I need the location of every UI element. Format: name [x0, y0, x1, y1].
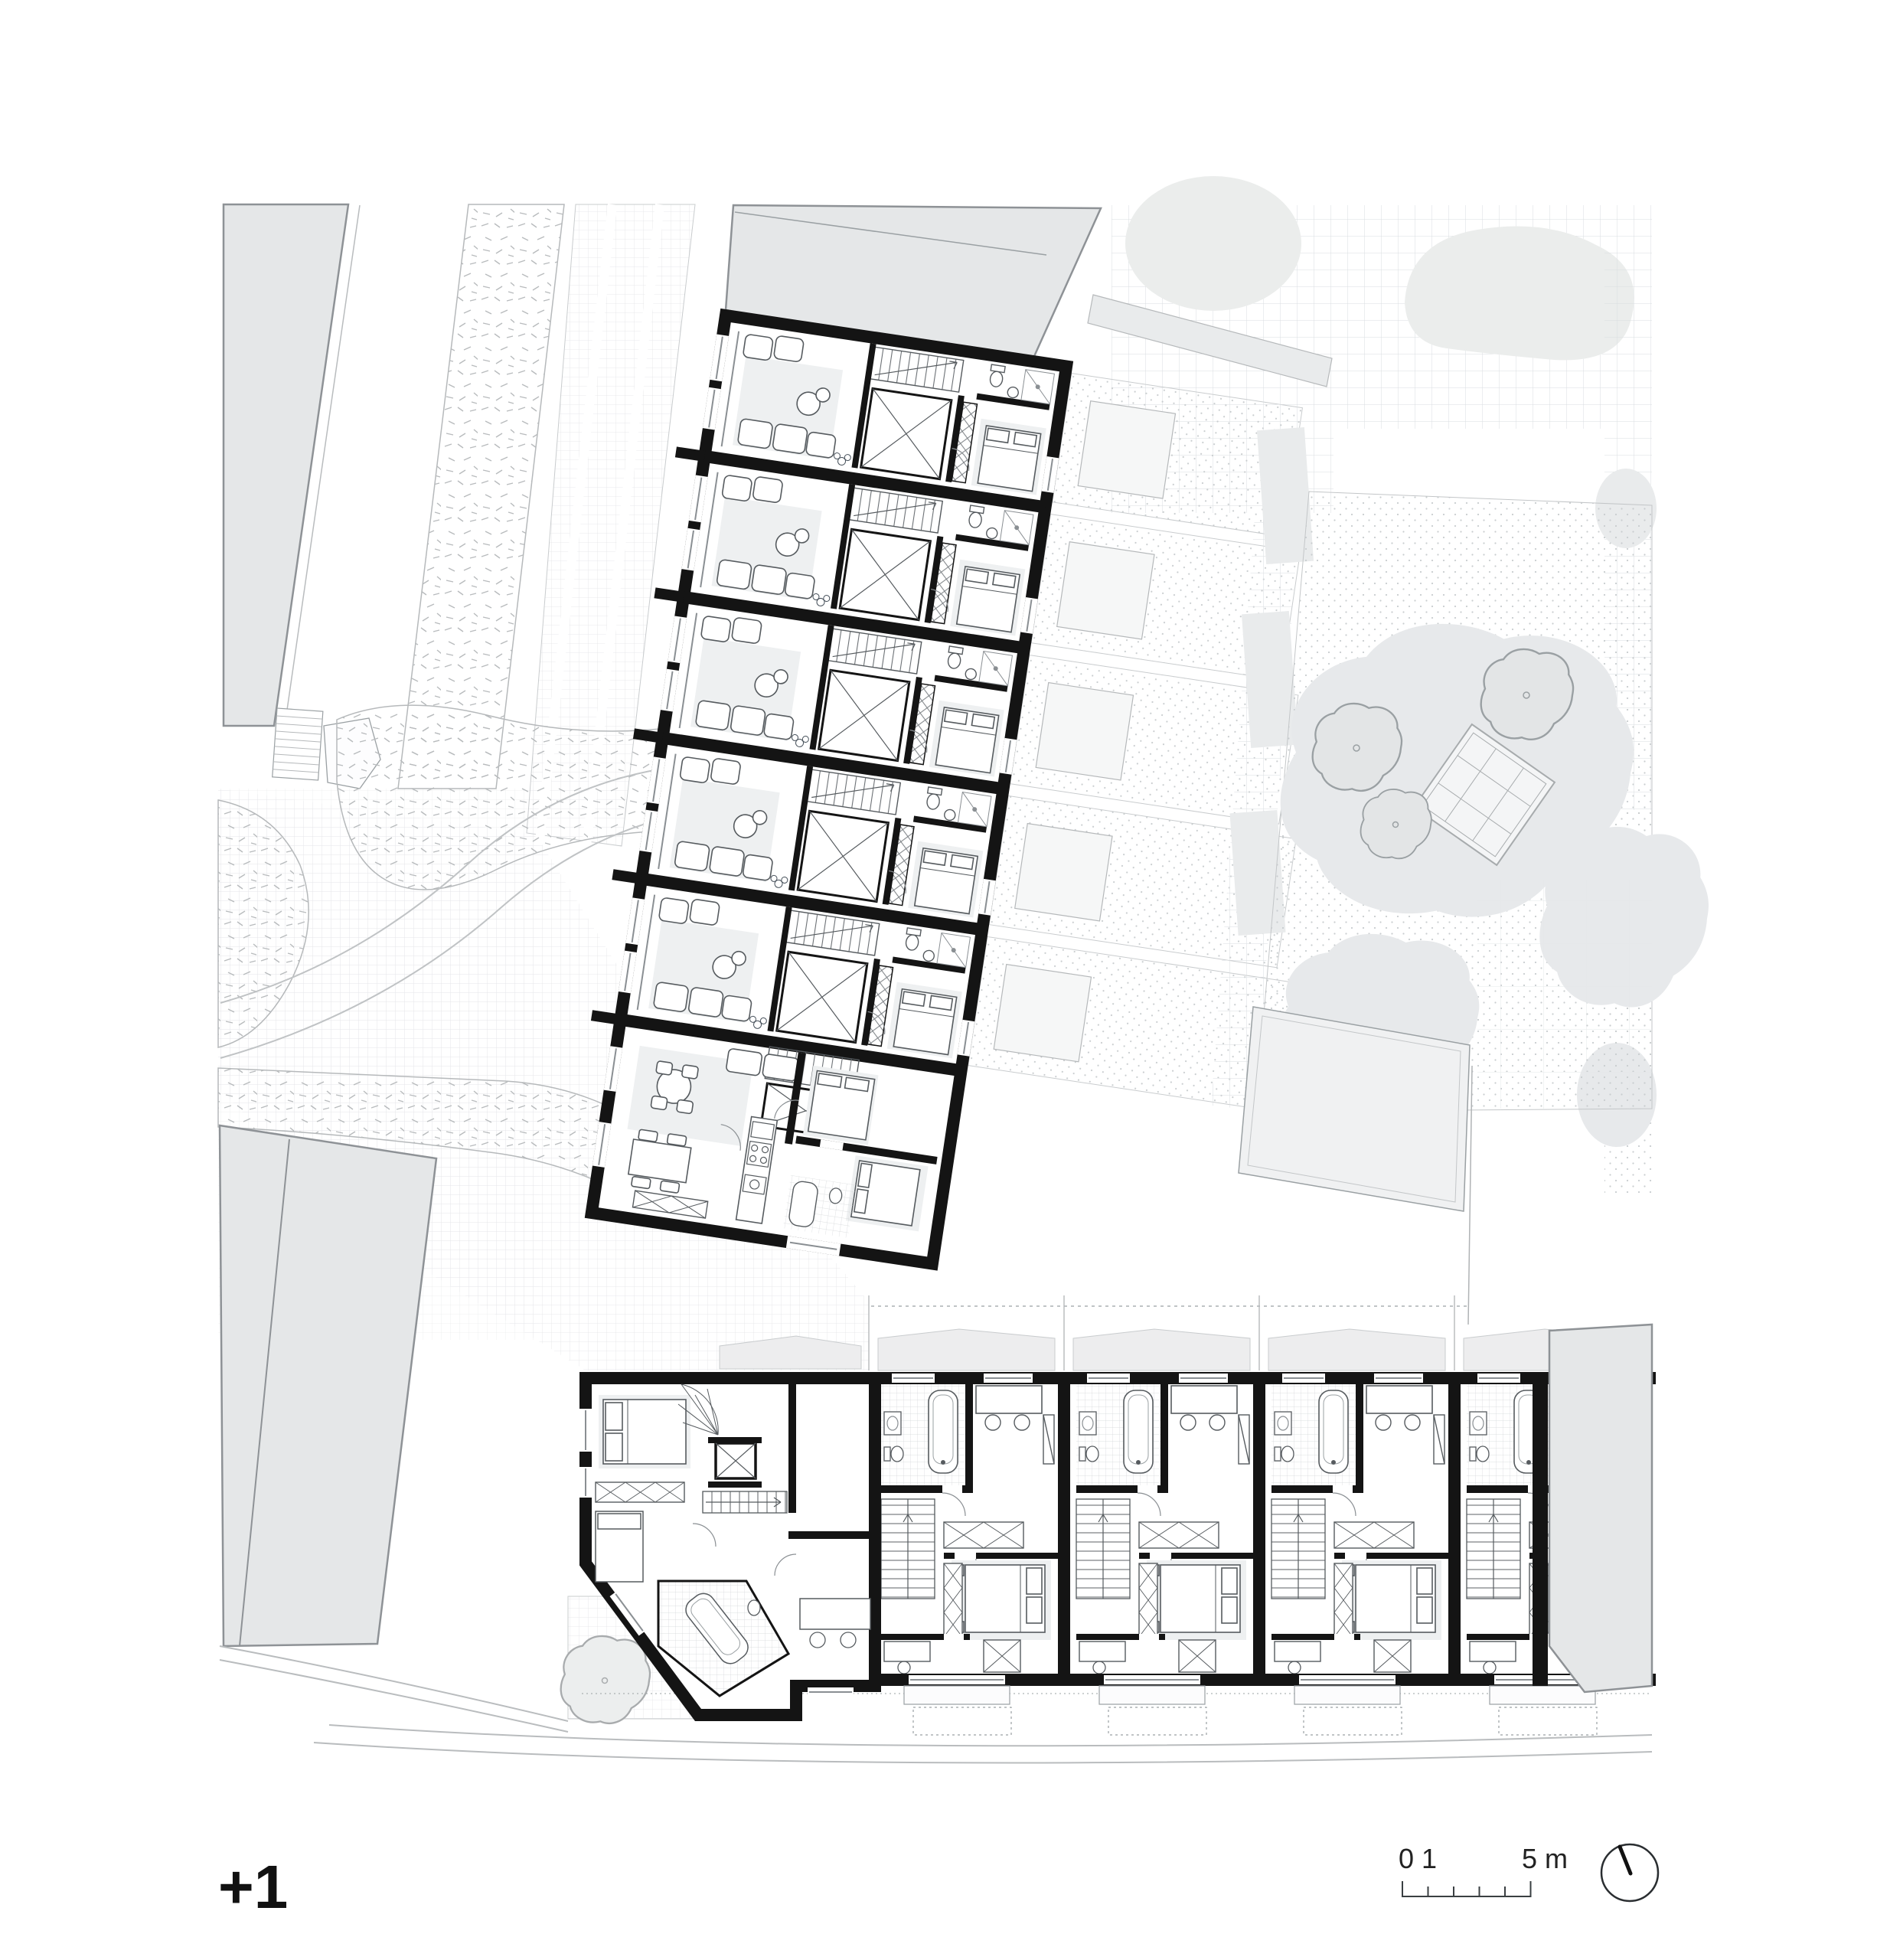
plaza-stairs: [273, 708, 323, 780]
titleblock: +1 0 1 5 m: [218, 1843, 1658, 1921]
row-house-building: [579, 1295, 1656, 1735]
scale-label-1: 1: [1422, 1843, 1437, 1874]
floor-level-label: +1: [218, 1853, 288, 1921]
north-arrow-icon: [1601, 1844, 1658, 1901]
scale-label-5m: 5 m: [1522, 1843, 1568, 1874]
context-building-southeast: [1549, 1325, 1652, 1692]
site-plan-drawing: +1 0 1 5 m: [0, 0, 1877, 1960]
floor-plan-sheet: +1 0 1 5 m: [0, 0, 1877, 1960]
scale-label-0: 0: [1399, 1843, 1414, 1874]
context-slab-east: [1239, 1007, 1472, 1325]
scale-bar: 0 1 5 m: [1399, 1843, 1568, 1896]
context-buildings-southwest: [220, 1125, 436, 1646]
context-building-northwest: [224, 204, 360, 726]
